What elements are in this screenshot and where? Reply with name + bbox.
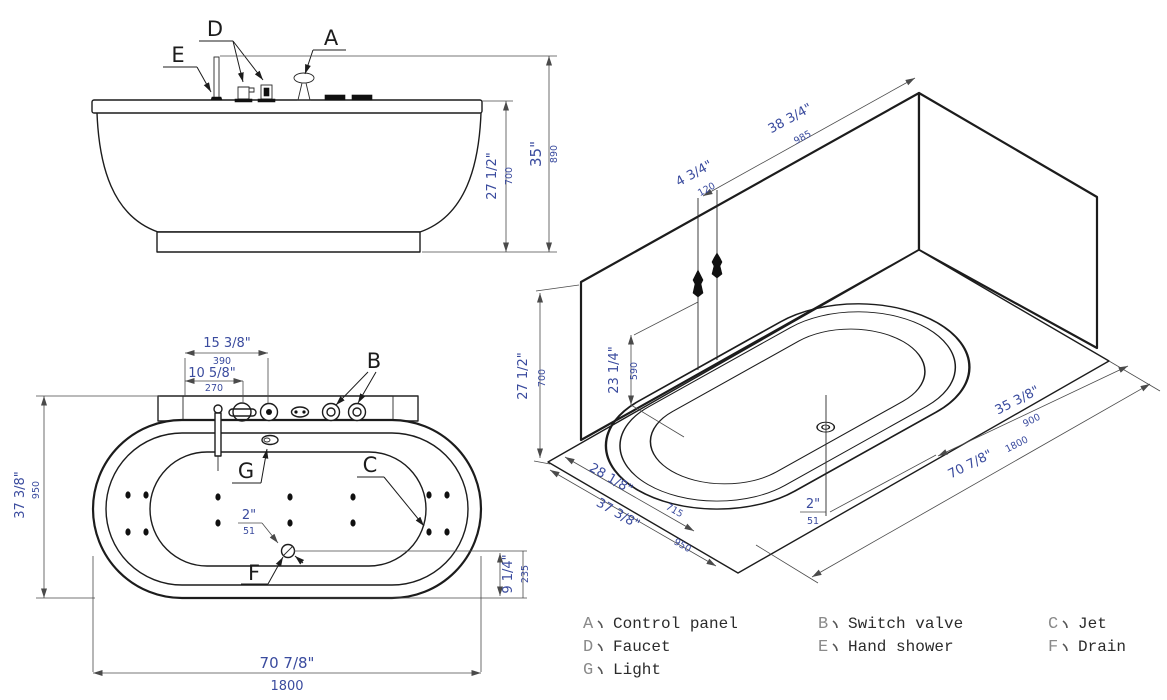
dim-iso-drain-from-end-mm: 900 xyxy=(1021,412,1042,430)
spout-plan xyxy=(292,407,309,417)
plan-view: B G C F 2" 51 15 3/8" 390 10 5/8" 270 xyxy=(13,336,531,694)
light-fixture-plan xyxy=(262,436,278,445)
svg-text:A: A xyxy=(583,615,594,634)
technical-drawing-page: E D A 27 1/2" 700 35" 890 xyxy=(0,0,1167,700)
dim-iso-drain-size-mm: 51 xyxy=(807,516,819,527)
callout-F: F xyxy=(248,561,260,585)
svg-text:B: B xyxy=(818,615,828,634)
callout-C: C xyxy=(363,453,378,477)
dim-front-total-height-in: 35" xyxy=(527,141,545,167)
legend: A Control panel D Faucet G Light B Switc… xyxy=(583,615,1126,680)
front-view: E D A 27 1/2" 700 35" 890 xyxy=(92,17,560,252)
dim-plan-control-offset-in: 15 3/8" xyxy=(203,336,251,351)
legend-item-B: B Switch valve xyxy=(818,615,963,634)
dim-iso-wall-height-mm: 700 xyxy=(537,369,548,387)
hand-shower-fixture xyxy=(211,57,222,100)
dim-iso-wall-height-in: 27 1/2" xyxy=(516,352,531,400)
switch-valve-1 xyxy=(323,404,340,421)
svg-text:C: C xyxy=(1048,615,1058,634)
callout-B: B xyxy=(367,349,381,373)
dim-front-rim-height-mm: 700 xyxy=(504,167,515,185)
svg-text:E: E xyxy=(818,638,828,657)
svg-text:Light: Light xyxy=(613,661,661,679)
ideographic-comma xyxy=(1063,621,1067,628)
dim-plan-drain-mm: 51 xyxy=(243,526,255,537)
control-panel-knob xyxy=(294,73,314,100)
dim-plan-length-mm: 1800 xyxy=(270,679,303,694)
dim-iso-drain-size-in: 2" xyxy=(806,497,820,512)
svg-text:D: D xyxy=(583,638,593,657)
svg-text:Switch valve: Switch valve xyxy=(848,615,963,633)
svg-text:Hand shower: Hand shower xyxy=(848,638,954,656)
front-deck-fixtures xyxy=(211,57,372,102)
svg-text:Control panel: Control panel xyxy=(613,615,738,633)
front-tub-outline xyxy=(92,100,482,252)
dim-iso-fixture-spacing-mm: 120 xyxy=(696,181,717,199)
faucet-fixture xyxy=(235,87,254,102)
ideographic-comma xyxy=(598,667,602,674)
dim-front-total-height-mm: 890 xyxy=(549,145,560,163)
plan-deck xyxy=(158,396,418,421)
switch-valve-2 xyxy=(349,404,366,421)
svg-text:G: G xyxy=(583,661,593,680)
svg-text:Faucet: Faucet xyxy=(613,638,671,656)
dim-plan-drain-offset-mm: 235 xyxy=(520,565,531,583)
callout-D: D xyxy=(207,17,223,41)
dim-iso-faucet-to-corner-mm: 985 xyxy=(792,129,813,147)
iso-view: 38 3/4" 985 4 3/4" 120 23 1/4" 590 27 1/… xyxy=(516,78,1160,583)
callout-G: G xyxy=(238,459,254,483)
ideographic-comma xyxy=(1063,644,1067,651)
dim-iso-length-mm: 1800 xyxy=(1004,434,1031,455)
dim-iso-fixture-height-mm: 590 xyxy=(629,362,640,380)
svg-text:F: F xyxy=(1048,638,1058,657)
drawing-canvas: E D A 27 1/2" 700 35" 890 xyxy=(0,0,1167,700)
dim-iso-fixture-height-in: 23 1/4" xyxy=(607,346,622,394)
legend-item-E: E Hand shower xyxy=(818,638,954,657)
callout-E: E xyxy=(171,43,184,67)
ideographic-comma xyxy=(833,621,837,628)
dim-plan-drain-in: 2" xyxy=(242,508,256,523)
ideographic-comma xyxy=(598,621,602,628)
dim-plan-faucet-offset-in: 10 5/8" xyxy=(188,366,236,381)
legend-item-A: A Control panel xyxy=(583,615,738,634)
dim-plan-width-mm: 950 xyxy=(31,481,42,499)
legend-item-G: G Light xyxy=(583,661,661,680)
front-callouts: E D A xyxy=(163,17,346,92)
ideographic-comma xyxy=(833,644,837,651)
dim-plan-faucet-offset-mm: 270 xyxy=(205,383,223,394)
dim-plan-drain-offset-in: 9 1/4" xyxy=(501,554,516,593)
dim-front-rim-height-in: 27 1/2" xyxy=(485,152,500,200)
drain-plan xyxy=(282,545,295,558)
deck-pad-1 xyxy=(325,95,345,100)
legend-item-D: D Faucet xyxy=(583,638,671,657)
callout-A: A xyxy=(324,26,339,50)
svg-text:Drain: Drain xyxy=(1078,638,1126,656)
svg-text:Jet: Jet xyxy=(1078,615,1107,633)
ideographic-comma xyxy=(598,644,602,651)
dim-plan-width-in: 37 3/8" xyxy=(13,471,28,519)
legend-item-C: C Jet xyxy=(1048,615,1107,634)
control-plan xyxy=(261,404,278,421)
deck-pad-2 xyxy=(352,95,372,100)
diverter-fixture xyxy=(258,85,275,102)
legend-item-F: F Drain xyxy=(1048,638,1126,657)
dim-plan-length-in: 70 7/8" xyxy=(260,654,315,672)
plan-tub-outline xyxy=(93,420,481,598)
